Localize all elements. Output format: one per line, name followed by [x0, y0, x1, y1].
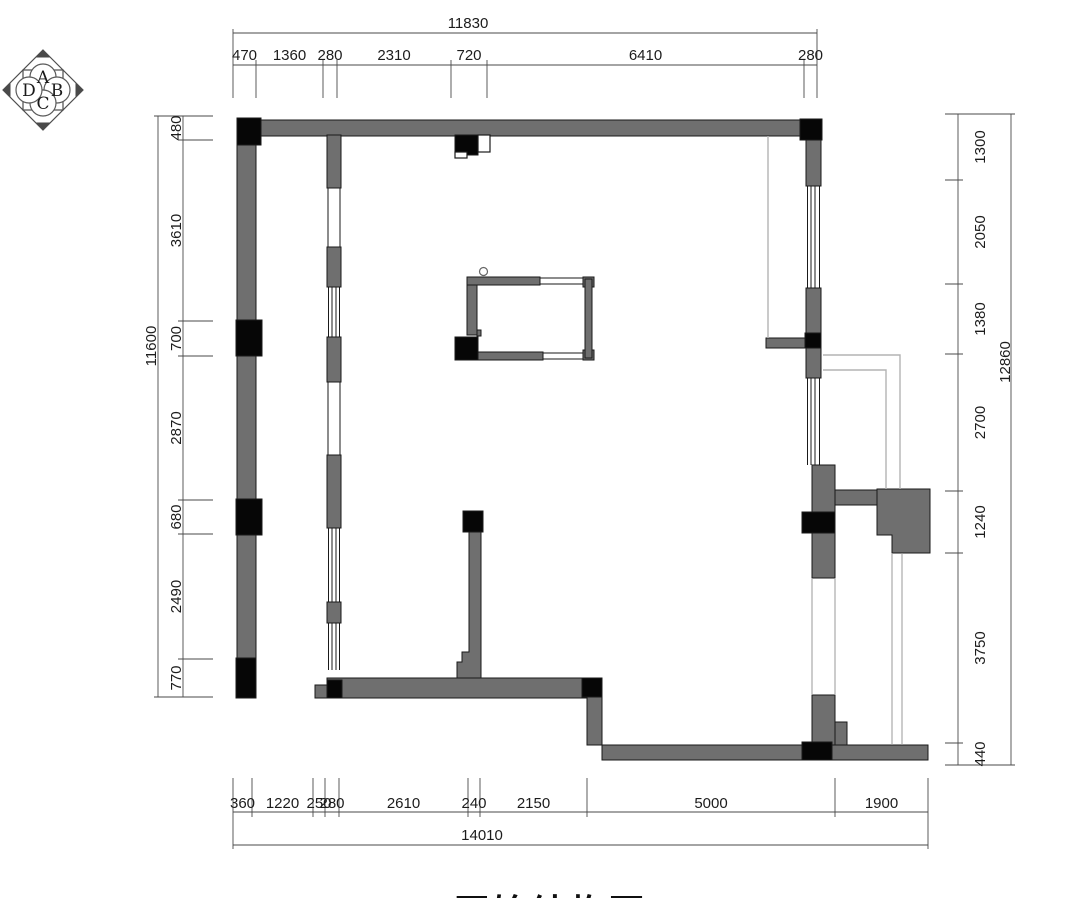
- column: [236, 658, 256, 698]
- partition-wall-segment: [327, 337, 341, 382]
- right-wall-segment: [812, 695, 835, 745]
- compass-letter-a: A: [36, 68, 50, 88]
- svg-text:2310: 2310: [377, 47, 410, 64]
- shaft-left-wall: [467, 277, 477, 335]
- svg-text:1220: 1220: [266, 795, 299, 812]
- column: [236, 499, 262, 535]
- compass-triangle-east: [76, 83, 84, 98]
- partition-wall-segment: [327, 135, 341, 188]
- svg-text:11830: 11830: [448, 15, 489, 32]
- column: [327, 680, 342, 698]
- svg-text:2050: 2050: [972, 215, 989, 248]
- window-2line: [328, 188, 340, 455]
- shaft-top-wall: [467, 277, 540, 285]
- dim-chain-top: 47013602802310720641028011830: [232, 15, 823, 98]
- compass-letter-b: B: [51, 81, 64, 101]
- shaft-frame-bar: [585, 279, 592, 358]
- dim-chain-left: 48036107002870680249077011600: [143, 115, 213, 697]
- svg-text:2700: 2700: [972, 406, 989, 439]
- compass-letter-d: D: [22, 81, 36, 101]
- right-wall-segment: [812, 533, 835, 578]
- column: [237, 118, 261, 145]
- column: [802, 742, 832, 760]
- stub-wall: [766, 338, 806, 348]
- partition-wall-segment: [327, 247, 341, 287]
- bottom-wall-lower: [602, 745, 928, 760]
- compass-triangle-north: [36, 50, 51, 58]
- shaft-bottom-wall: [478, 352, 543, 360]
- svg-text:2870: 2870: [168, 411, 185, 444]
- compass-letter-c: C: [36, 94, 49, 114]
- column: [802, 512, 835, 533]
- floor-plan-page: A B C D: [0, 0, 1080, 898]
- svg-text:1380: 1380: [972, 302, 989, 335]
- floor-plan-drawing: A B C D: [0, 0, 1080, 898]
- svg-text:280: 280: [798, 47, 823, 64]
- shaft-step: [477, 330, 481, 336]
- right-wall-segment: [806, 348, 821, 378]
- columns: [236, 118, 835, 760]
- right-wall-segment: [806, 140, 821, 186]
- wall-opening-edges: [812, 578, 835, 695]
- balcony-outlines: [768, 136, 900, 489]
- column: [236, 320, 262, 356]
- drawing-title: 原始结构图: [0, 884, 1080, 898]
- svg-text:11600: 11600: [143, 326, 160, 367]
- compass-icon: A B C D: [3, 50, 83, 130]
- walls: [237, 120, 930, 760]
- column: [582, 678, 602, 697]
- svg-text:3750: 3750: [972, 631, 989, 664]
- left-wall: [237, 136, 256, 698]
- svg-text:6410: 6410: [629, 47, 662, 64]
- door-frame-box: [478, 135, 490, 152]
- window-2line: [540, 278, 583, 359]
- dimension-chains: 4701360280231072064102801183036012202502…: [143, 15, 1015, 849]
- bottom-wall-upper: [327, 678, 601, 698]
- compass-triangle-south: [36, 123, 51, 131]
- svg-text:1900: 1900: [865, 795, 898, 812]
- central-lower-wall: [457, 532, 481, 678]
- bottom-wall-jog: [587, 697, 602, 745]
- dim-chain-bottom: 3601220250280261024021505000190014010: [230, 778, 928, 849]
- right-wall-segment: [812, 465, 835, 512]
- svg-text:700: 700: [168, 326, 185, 351]
- svg-text:3610: 3610: [168, 214, 185, 247]
- svg-text:680: 680: [168, 504, 185, 529]
- column: [800, 119, 822, 140]
- bay-structure-block: [877, 489, 930, 553]
- svg-text:240: 240: [461, 795, 486, 812]
- column: [805, 333, 821, 348]
- bottom-wall-step: [315, 685, 327, 698]
- svg-text:720: 720: [456, 47, 481, 64]
- column: [455, 337, 478, 360]
- svg-text:5000: 5000: [694, 795, 727, 812]
- svg-text:280: 280: [317, 47, 342, 64]
- svg-text:470: 470: [232, 47, 257, 64]
- svg-text:14010: 14010: [461, 827, 503, 844]
- partition-wall-segment: [327, 602, 341, 623]
- right-wall-segment: [806, 288, 821, 333]
- column: [463, 511, 483, 532]
- connector-wall: [835, 490, 877, 505]
- svg-text:480: 480: [168, 115, 185, 140]
- flue-circle-symbol: [480, 268, 488, 276]
- svg-text:280: 280: [319, 795, 344, 812]
- top-wall: [237, 120, 821, 136]
- svg-text:2610: 2610: [387, 795, 420, 812]
- dim-chain-right: 13002050138027001240375044012860: [945, 114, 1015, 767]
- right-wall-step: [835, 722, 847, 745]
- svg-text:440: 440: [972, 741, 989, 766]
- svg-text:770: 770: [168, 665, 185, 690]
- window-2line: [892, 553, 902, 745]
- door-frame-box: [455, 152, 467, 158]
- partition-wall-segment: [327, 455, 341, 528]
- svg-text:1300: 1300: [972, 130, 989, 163]
- svg-text:2490: 2490: [168, 580, 185, 613]
- svg-text:360: 360: [230, 795, 255, 812]
- svg-text:2150: 2150: [517, 795, 550, 812]
- svg-text:1360: 1360: [273, 47, 306, 64]
- svg-text:12860: 12860: [997, 341, 1014, 383]
- compass-triangle-west: [3, 83, 11, 98]
- svg-text:1240: 1240: [972, 505, 989, 538]
